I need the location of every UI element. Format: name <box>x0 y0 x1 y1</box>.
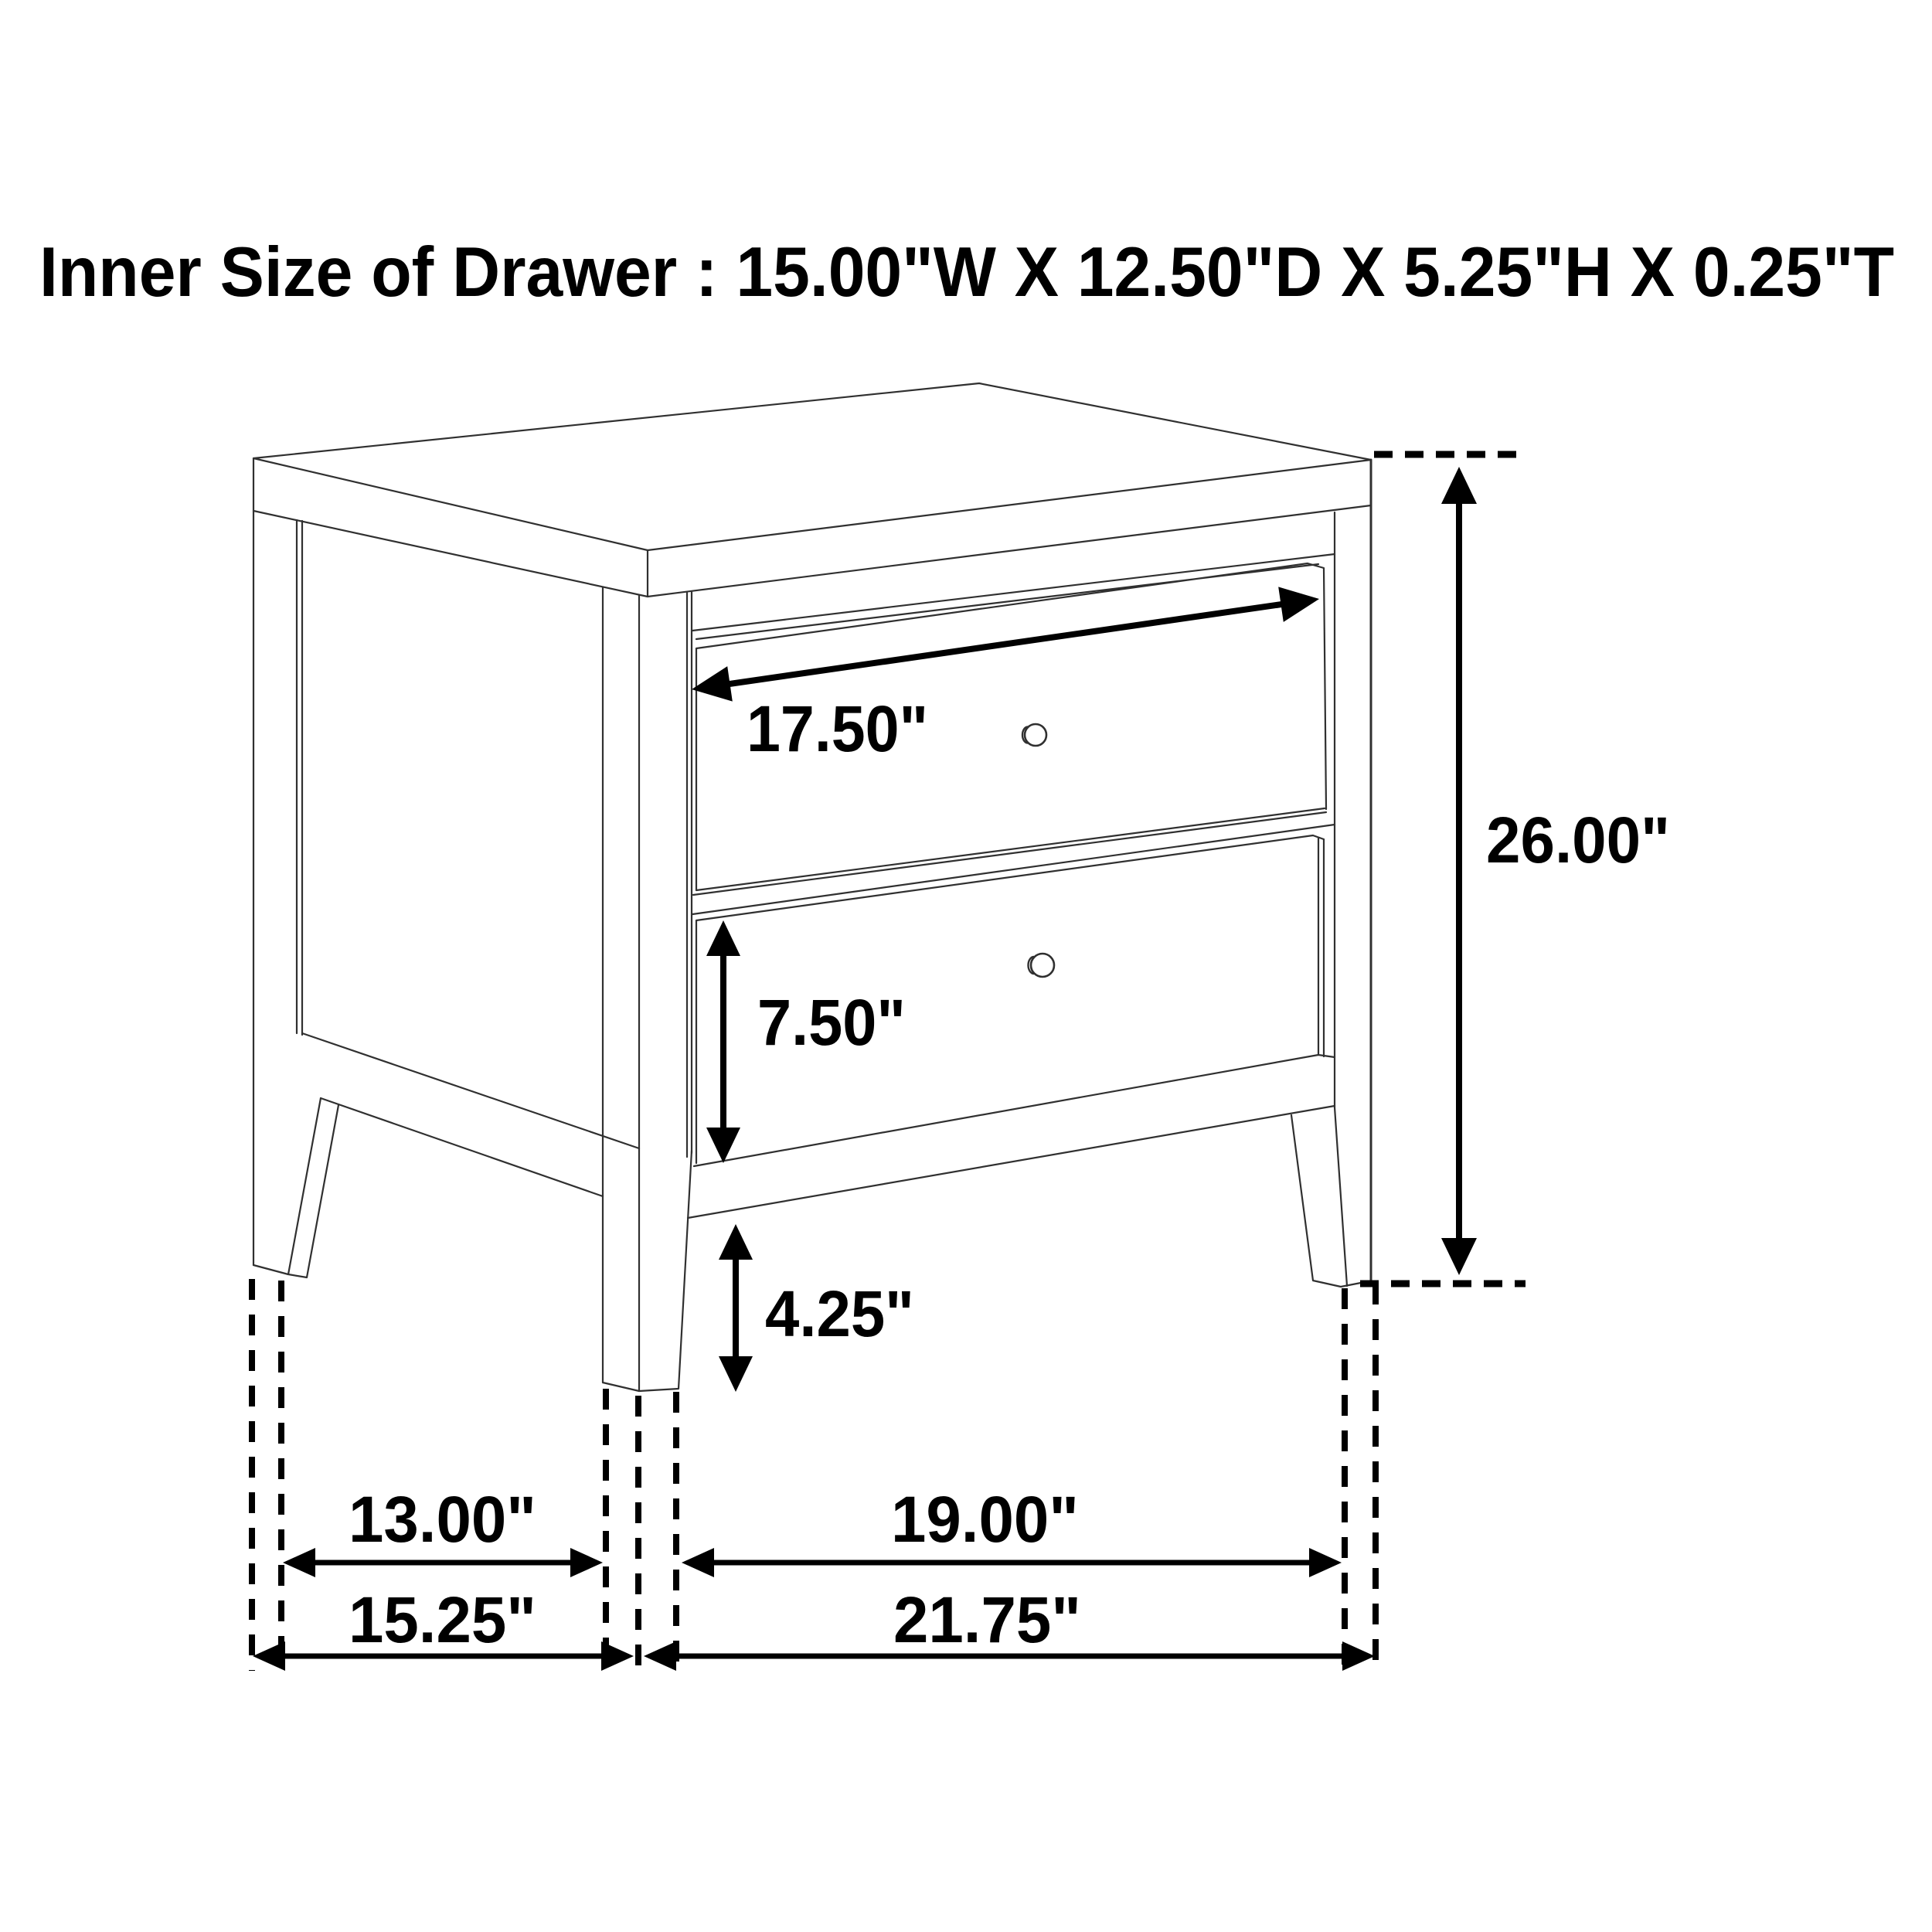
svg-text:Inner Size of Drawer : 15.00"W: Inner Size of Drawer : 15.00"W X 12.50"D… <box>39 233 1894 311</box>
svg-text:4.25": 4.25" <box>765 1277 914 1350</box>
svg-text:21.75": 21.75" <box>893 1583 1081 1656</box>
svg-text:19.00": 19.00" <box>891 1483 1079 1556</box>
svg-text:15.25": 15.25" <box>349 1583 536 1656</box>
svg-text:7.50": 7.50" <box>757 986 906 1059</box>
svg-text:13.00": 13.00" <box>349 1483 536 1556</box>
svg-text:17.50": 17.50" <box>747 692 928 765</box>
svg-text:26.00": 26.00" <box>1486 804 1670 876</box>
